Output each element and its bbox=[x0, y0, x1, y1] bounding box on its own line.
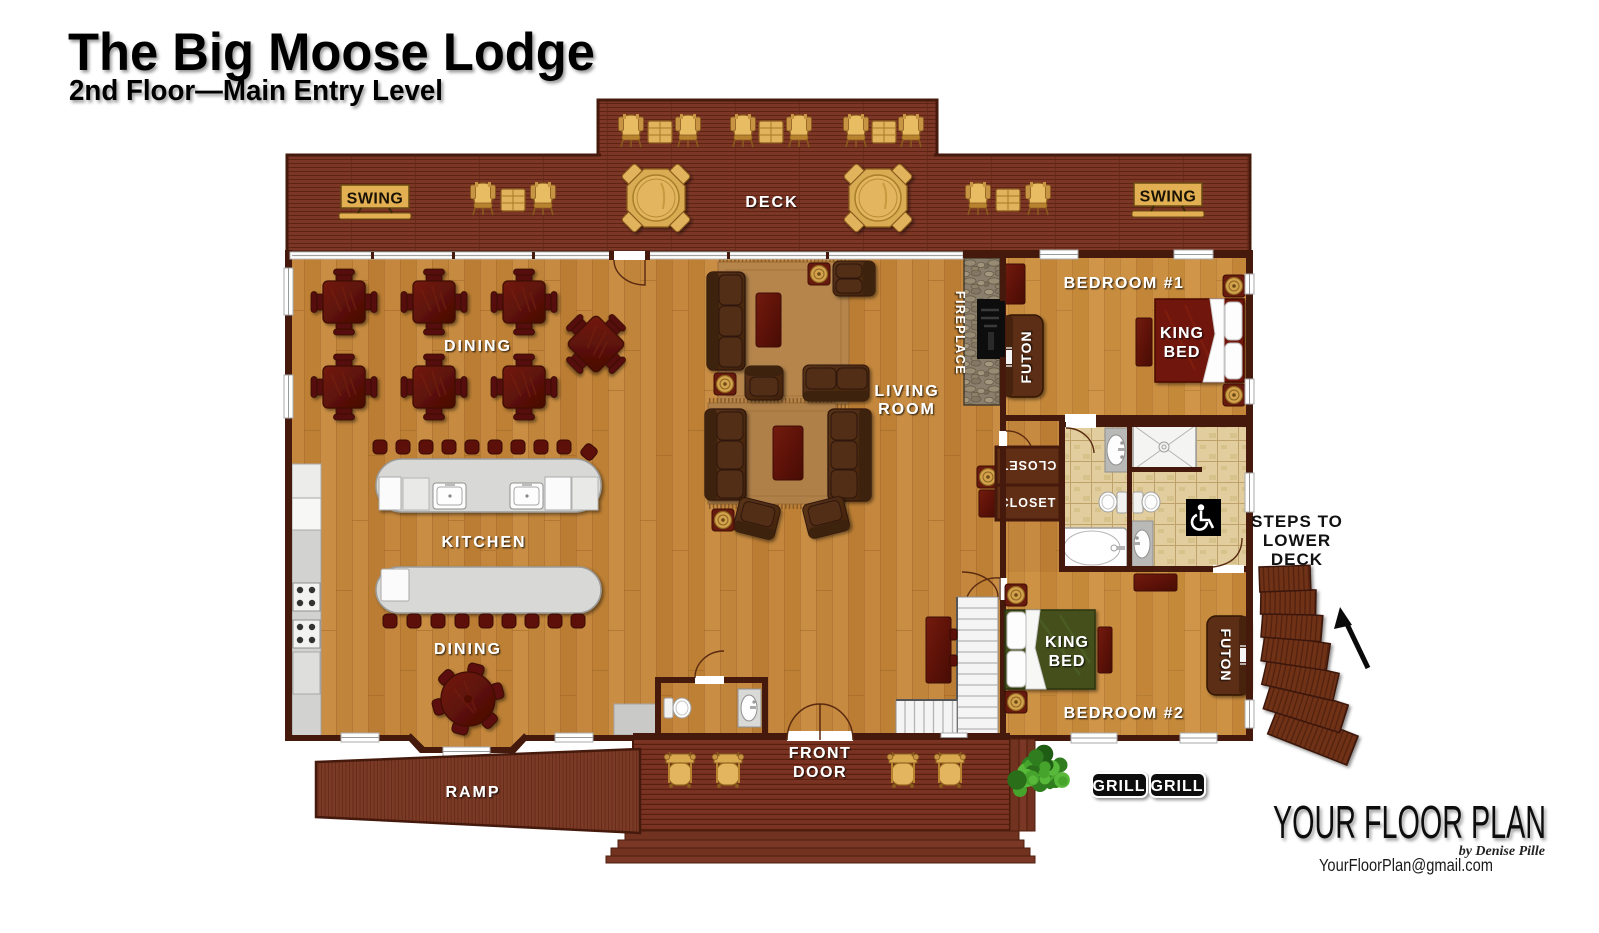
svg-text:2nd Floor—Main Entry Level: 2nd Floor—Main Entry Level bbox=[69, 75, 443, 107]
svg-text:FUTON: FUTON bbox=[1218, 629, 1234, 682]
svg-text:YourFloorPlan@gmail.com: YourFloorPlan@gmail.com bbox=[1319, 855, 1493, 875]
svg-text:CLOSET: CLOSET bbox=[1000, 496, 1057, 510]
svg-text:KING: KING bbox=[1160, 325, 1204, 342]
svg-text:ROOM: ROOM bbox=[878, 401, 936, 418]
svg-text:RAMP: RAMP bbox=[445, 784, 500, 801]
svg-text:DINING: DINING bbox=[434, 641, 502, 658]
svg-text:DINING: DINING bbox=[444, 338, 512, 355]
svg-text:DECK: DECK bbox=[745, 194, 798, 211]
svg-text:BEDROOM #2: BEDROOM #2 bbox=[1064, 705, 1185, 722]
svg-text:CLOSET: CLOSET bbox=[1000, 458, 1057, 472]
svg-text:KITCHEN: KITCHEN bbox=[441, 534, 526, 551]
svg-text:FUTON: FUTON bbox=[1018, 331, 1034, 384]
svg-text:LIVING: LIVING bbox=[874, 383, 939, 400]
svg-text:LOWER: LOWER bbox=[1263, 531, 1331, 550]
svg-text:STEPS TO: STEPS TO bbox=[1251, 512, 1343, 531]
svg-text:FRONT: FRONT bbox=[789, 745, 852, 762]
svg-text:BEDROOM #1: BEDROOM #1 bbox=[1064, 275, 1185, 292]
svg-text:FIREPLACE: FIREPLACE bbox=[953, 291, 967, 375]
svg-text:DOOR: DOOR bbox=[793, 764, 847, 781]
svg-text:YOUR FLOOR PLAN: YOUR FLOOR PLAN bbox=[1273, 796, 1546, 848]
svg-text:BED: BED bbox=[1164, 344, 1201, 361]
svg-text:BED: BED bbox=[1049, 653, 1086, 670]
svg-text:GRILL: GRILL bbox=[1151, 778, 1204, 795]
svg-text:KING: KING bbox=[1045, 634, 1089, 651]
svg-text:GRILL: GRILL bbox=[1093, 778, 1146, 795]
svg-text:The Big Moose Lodge: The Big Moose Lodge bbox=[68, 23, 595, 82]
